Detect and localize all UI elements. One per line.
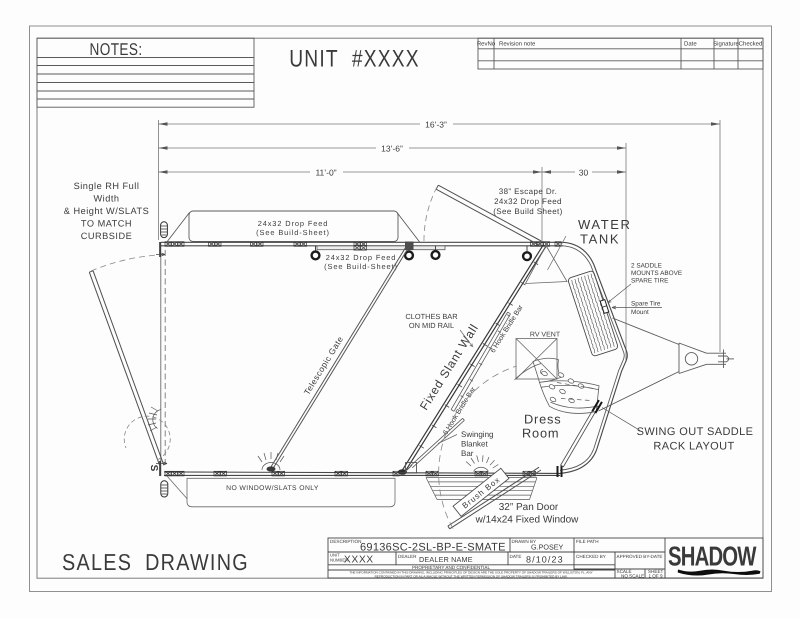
svg-text:DESCRIPTION: DESCRIPTION [330, 539, 361, 544]
svg-text:TANK: TANK [580, 232, 620, 247]
svg-text:(See Build Sheet): (See Build Sheet) [493, 207, 563, 216]
svg-text:CURBSIDE: CURBSIDE [81, 231, 132, 241]
svg-text:Swinging: Swinging [461, 430, 493, 439]
svg-text:XXXX: XXXX [344, 555, 374, 566]
svg-text:24x32 Drop Feed: 24x32 Drop Feed [258, 219, 329, 228]
svg-text:Dress: Dress [524, 412, 561, 427]
svg-text:SWING OUT SADDLE: SWING OUT SADDLE [637, 426, 754, 438]
svg-text:TO MATCH: TO MATCH [81, 219, 132, 229]
svg-text:CLOTHES BAR: CLOTHES BAR [405, 312, 457, 321]
svg-text:Date: Date [684, 41, 697, 48]
svg-text:NOTES:: NOTES: [89, 40, 142, 59]
svg-text:24x32 Drop Feed: 24x32 Drop Feed [326, 253, 397, 262]
svg-text:1 OF 9: 1 OF 9 [648, 573, 662, 578]
svg-text:PROPRIETARY AND CONFIDENTIAL: PROPRIETARY AND CONFIDENTIAL [412, 565, 491, 570]
svg-text:RACK LAYOUT: RACK LAYOUT [653, 441, 734, 453]
svg-text:RV VENT: RV VENT [530, 332, 561, 339]
svg-text:Width: Width [94, 194, 120, 204]
svg-text:(See Build-Sheet): (See Build-Sheet) [324, 262, 398, 271]
svg-text:G.POSEY: G.POSEY [531, 543, 564, 552]
svg-text:Spare Tire: Spare Tire [631, 301, 661, 308]
svg-text:Blanket: Blanket [461, 440, 488, 449]
svg-text:16’-3”: 16’-3” [425, 120, 447, 130]
svg-text:UNIT #XXXX: UNIT #XXXX [289, 46, 420, 73]
svg-text:Checked: Checked [739, 41, 763, 48]
svg-text:& Height W/SLATS: & Height W/SLATS [64, 206, 149, 216]
svg-text:WATER: WATER [578, 217, 632, 232]
svg-text:w/14x24 Fixed Window: w/14x24 Fixed Window [475, 515, 580, 526]
svg-text:13’-6”: 13’-6” [381, 144, 403, 154]
svg-text:S: S [148, 465, 159, 472]
svg-text:69136SC-2SL-BP-E-SMATE: 69136SC-2SL-BP-E-SMATE [360, 542, 506, 554]
svg-text:DEALER: DEALER [398, 554, 417, 559]
svg-text:DEALER NAME: DEALER NAME [419, 555, 473, 564]
svg-text:RevNo: RevNo [477, 41, 496, 48]
svg-text:SALES DRAWING: SALES DRAWING [62, 549, 249, 575]
svg-text:APPROVED BY-DATE: APPROVED BY-DATE [617, 554, 663, 559]
svg-text:Room: Room [522, 426, 559, 441]
svg-text:38” Escape Dr.: 38” Escape Dr. [499, 187, 558, 196]
svg-text:REPRODUCTION IN PART OR AS A W: REPRODUCTION IN PART OR AS A WHOLE WITHO… [375, 575, 568, 579]
svg-text:CHECKED BY: CHECKED BY [576, 554, 606, 559]
svg-text:FILE PATH: FILE PATH [576, 539, 599, 544]
svg-text:SHADOW: SHADOW [668, 542, 757, 572]
svg-text:2 SADDLE: 2 SADDLE [631, 263, 662, 270]
svg-text:DATE: DATE [510, 554, 522, 559]
svg-text:NO SCALE: NO SCALE [621, 573, 644, 578]
svg-text:30: 30 [579, 168, 589, 178]
svg-text:Bar: Bar [461, 449, 474, 458]
svg-text:Single RH Full: Single RH Full [74, 181, 140, 191]
svg-text:Signature: Signature [713, 41, 739, 48]
svg-text:Revision note: Revision note [499, 41, 536, 48]
svg-text:MOUNTS ABOVE: MOUNTS ABOVE [631, 270, 682, 277]
svg-text:32” Pan Door: 32” Pan Door [499, 502, 559, 513]
svg-text:11’-0”: 11’-0” [315, 168, 336, 178]
svg-text:SPARE TIRE: SPARE TIRE [631, 278, 668, 285]
svg-text:Mount: Mount [631, 309, 649, 316]
svg-text:24x32 Drop Feed: 24x32 Drop Feed [494, 197, 562, 206]
svg-text:(See Build-Sheet): (See Build-Sheet) [256, 228, 330, 237]
svg-text:ON MID RAIL: ON MID RAIL [409, 321, 454, 330]
svg-text:8/10/23: 8/10/23 [526, 555, 564, 565]
svg-text:NO WINDOW/SLATS ONLY: NO WINDOW/SLATS ONLY [226, 485, 319, 492]
